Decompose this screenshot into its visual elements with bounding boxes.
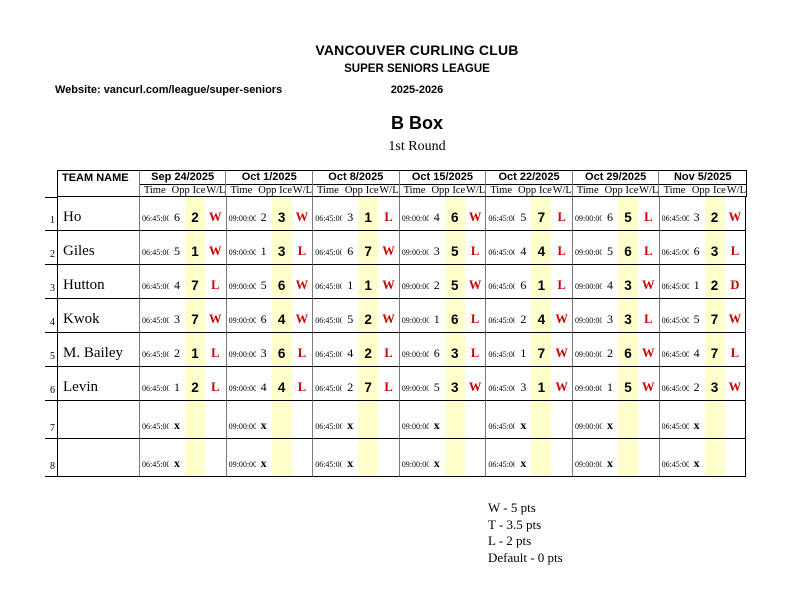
opponent-number: x [689,401,705,438]
ice-number [272,401,292,438]
opponent-number: x [689,439,705,476]
game-time: 09:00:00 [227,367,256,400]
result-letter: W [292,299,313,332]
game-cell: 09:00:0043W [573,265,660,299]
opponent-number: 4 [256,367,272,400]
result-letter: L [292,367,313,400]
date-group-header: Nov 5/2025TimeOppIceW/L [659,171,746,196]
subheader-opp: Opp [170,185,192,196]
ice-number: 5 [618,197,638,230]
game-time: 09:00:00 [573,439,602,476]
game-time: 06:45:00 [140,333,169,366]
subheader-opp: Opp [256,185,278,196]
table-row: 6Levin06:45:0012L09:00:0044L06:45:0027L0… [45,367,747,401]
date-header: Oct 29/2025 [573,171,659,185]
ice-number [531,439,551,476]
game-cell: 06:45:0067W [313,231,400,265]
opponent-number: x [342,439,358,476]
opponent-number: 6 [256,299,272,332]
opponent-number: 2 [342,367,358,400]
game-time: 06:45:00 [660,265,689,298]
result-letter [292,401,313,438]
result-letter: W [551,367,572,400]
opponent-number: 2 [429,265,445,298]
game-cell: 06:45:0057L [486,197,573,231]
game-cell: 09:00:0035L [400,231,487,265]
game-cell: 06:45:00x [313,401,400,439]
table-header-row: TEAM NAME Sep 24/2025TimeOppIceW/LOct 1/… [57,170,747,197]
result-letter [378,401,399,438]
game-cell: 06:45:0042L [313,333,400,367]
game-time: 06:45:00 [486,367,515,400]
season-label: 2025-2026 [40,84,792,96]
game-cell: 09:00:0026W [573,333,660,367]
result-letter: L [638,231,659,264]
game-time: 06:45:00 [313,367,342,400]
result-letter: W [725,197,746,230]
game-cell: 09:00:0023W [227,197,314,231]
game-time: 09:00:00 [573,265,602,298]
ice-number [618,439,638,476]
game-cell: 09:00:0056L [573,231,660,265]
game-time: 06:45:00 [660,197,689,230]
subheader-opp: Opp [516,185,538,196]
row-number: 7 [45,401,57,439]
ice-number: 3 [618,299,638,332]
game-time: 06:45:00 [313,231,342,264]
game-cell: 06:45:0012D [660,265,747,299]
opponent-number: x [429,439,445,476]
game-cell: 09:00:00x [227,401,314,439]
opponent-number: x [515,439,531,476]
subheader-ice: Ice [625,185,639,196]
ice-number: 7 [358,231,378,264]
date-header: Sep 24/2025 [140,171,226,185]
result-letter: L [465,231,486,264]
team-name: Ho [57,197,140,231]
game-time: 09:00:00 [573,197,602,230]
ice-number: 4 [531,231,551,264]
table-row: 5M. Bailey06:45:0021L09:00:0036L06:45:00… [45,333,747,367]
date-header: Oct 8/2025 [313,171,399,185]
ice-number: 2 [705,197,725,230]
result-letter: W [551,299,572,332]
game-time: 06:45:00 [660,231,689,264]
opponent-number: 4 [515,231,531,264]
opponent-number: 6 [169,197,185,230]
game-cell: 06:45:0062W [140,197,227,231]
result-letter: L [378,367,399,400]
game-cell: 06:45:0044L [486,231,573,265]
game-cell: 06:45:0047L [140,265,227,299]
opponent-number: 2 [515,299,531,332]
game-time: 06:45:00 [140,265,169,298]
opponent-number: 4 [169,265,185,298]
table-row: 806:45:00x09:00:00x06:45:00x09:00:00x06:… [45,439,747,477]
ice-number: 1 [185,231,205,264]
game-time: 06:45:00 [140,439,169,476]
date-header: Oct 22/2025 [486,171,572,185]
ice-number: 4 [272,367,292,400]
result-letter: W [205,197,226,230]
ice-number [272,439,292,476]
ice-number: 1 [358,265,378,298]
ice-number: 7 [185,265,205,298]
ice-number: 3 [445,333,465,366]
result-letter: L [725,231,746,264]
game-cell: 06:45:00x [140,401,227,439]
subheader-row: TimeOppIceW/L [140,185,226,196]
opponent-number: x [429,401,445,438]
subheader-row: TimeOppIceW/L [573,185,659,196]
result-letter [725,401,746,438]
schedule-table: TEAM NAME Sep 24/2025TimeOppIceW/LOct 1/… [45,170,747,477]
game-cell: 09:00:0053W [400,367,487,401]
ice-number: 4 [531,299,551,332]
result-letter: L [205,333,226,366]
game-cell: 06:45:0032W [660,197,747,231]
game-cell: 06:45:00x [140,439,227,477]
result-letter: L [378,197,399,230]
subheader-time: Time [573,185,603,196]
subheader-time: Time [140,185,170,196]
game-time: 09:00:00 [400,299,429,332]
ice-number: 4 [272,299,292,332]
result-letter [465,439,486,476]
opponent-number: 6 [602,197,618,230]
opponent-number: 1 [429,299,445,332]
game-time: 09:00:00 [227,231,256,264]
game-time: 09:00:00 [573,367,602,400]
game-cell: 06:45:0031L [313,197,400,231]
result-letter [378,439,399,476]
row-number: 8 [45,439,57,477]
game-cell: 06:45:0051W [140,231,227,265]
opponent-number: x [169,401,185,438]
points-legend: W - 5 ptsT - 3.5 ptsL - 2 ptsDefault - 0… [488,500,563,566]
table-row: 1Ho06:45:0062W09:00:0023W06:45:0031L09:0… [45,197,747,231]
game-cell: 06:45:00x [486,439,573,477]
game-time: 09:00:00 [227,299,256,332]
opponent-number: 4 [429,197,445,230]
game-time: 09:00:00 [400,265,429,298]
game-cell: 06:45:0023W [660,367,747,401]
result-letter: L [205,367,226,400]
subheader-opp: Opp [429,185,451,196]
game-time: 06:45:00 [486,333,515,366]
opponent-number: 3 [689,197,705,230]
row-number: 5 [45,333,57,367]
opponent-number: x [342,401,358,438]
opponent-number: 3 [256,333,272,366]
result-letter [205,401,226,438]
team-name [57,439,140,477]
game-time: 09:00:00 [573,231,602,264]
date-header: Nov 5/2025 [659,171,746,185]
opponent-number: 2 [602,333,618,366]
subheader-wl: W/L [206,185,225,196]
opponent-number: 3 [515,367,531,400]
ice-number: 3 [272,197,292,230]
game-cell: 09:00:0063L [400,333,487,367]
row-number: 1 [45,197,57,231]
result-letter: W [378,265,399,298]
game-time: 06:45:00 [313,401,342,438]
result-letter: W [292,197,313,230]
game-time: 09:00:00 [227,439,256,476]
ice-number: 1 [185,333,205,366]
ice-number [705,401,725,438]
game-cell: 06:45:0061L [486,265,573,299]
opponent-number: 3 [342,197,358,230]
ice-number: 7 [531,333,551,366]
game-cell: 06:45:0027L [313,367,400,401]
ice-number: 2 [358,299,378,332]
opponent-number: 4 [689,333,705,366]
team-name: M. Bailey [57,333,140,367]
game-time: 09:00:00 [227,265,256,298]
opponent-number: 1 [256,231,272,264]
result-letter: L [725,333,746,366]
date-group-header: Oct 8/2025TimeOppIceW/L [313,171,400,196]
date-header: Oct 15/2025 [400,171,486,185]
game-time: 09:00:00 [573,299,602,332]
game-time: 06:45:00 [660,401,689,438]
ice-number [705,439,725,476]
game-time: 06:45:00 [660,367,689,400]
result-letter [465,401,486,438]
opponent-number: 6 [342,231,358,264]
opponent-number: 5 [602,231,618,264]
ice-number: 3 [272,231,292,264]
ice-number: 7 [185,299,205,332]
game-time: 06:45:00 [313,197,342,230]
opponent-number: 2 [169,333,185,366]
ice-number: 7 [358,367,378,400]
game-cell: 06:45:00x [486,401,573,439]
subheader-ice: Ice [365,185,379,196]
ice-number: 2 [358,333,378,366]
result-letter [205,439,226,476]
game-time: 06:45:00 [140,401,169,438]
row-number: 6 [45,367,57,401]
result-letter: L [551,265,572,298]
ice-number: 2 [185,367,205,400]
team-name: Levin [57,367,140,401]
legend-line: Default - 0 pts [488,550,563,567]
opponent-number: 4 [342,333,358,366]
game-time: 06:45:00 [313,333,342,366]
result-letter [551,439,572,476]
subheader-ice: Ice [452,185,466,196]
result-letter: W [465,367,486,400]
date-group-header: Oct 29/2025TimeOppIceW/L [573,171,660,196]
ice-number: 7 [531,197,551,230]
game-cell: 09:00:00x [400,401,487,439]
game-time: 09:00:00 [400,231,429,264]
opponent-number: x [602,401,618,438]
game-time: 06:45:00 [660,333,689,366]
legend-line: L - 2 pts [488,533,563,550]
game-cell: 09:00:00x [573,439,660,477]
subheader-row: TimeOppIceW/L [659,185,746,196]
result-letter: W [378,299,399,332]
result-letter: L [465,333,486,366]
opponent-number: 5 [515,197,531,230]
result-letter: L [638,299,659,332]
game-time: 09:00:00 [227,197,256,230]
subheader-ice: Ice [278,185,292,196]
subheader-ice: Ice [192,185,206,196]
result-letter: W [638,333,659,366]
opponent-number: 6 [429,333,445,366]
result-letter: W [725,299,746,332]
game-cell: 09:00:0065L [573,197,660,231]
ice-number: 6 [618,333,638,366]
opponent-number: 6 [515,265,531,298]
game-cell: 06:45:0021L [140,333,227,367]
league-subtitle: SUPER SENIORS LEAGUE [40,63,792,75]
game-cell: 06:45:00x [313,439,400,477]
game-cell: 09:00:0025W [400,265,487,299]
result-letter: W [638,265,659,298]
game-cell: 09:00:0046W [400,197,487,231]
result-letter: W [551,333,572,366]
game-time: 09:00:00 [227,401,256,438]
game-time: 06:45:00 [313,439,342,476]
ice-number: 3 [618,265,638,298]
game-time: 09:00:00 [573,333,602,366]
ice-number: 6 [618,231,638,264]
box-title: B Box [40,113,792,134]
result-letter: L [551,231,572,264]
team-name: Hutton [57,265,140,299]
result-letter [638,401,659,438]
opponent-number: 5 [342,299,358,332]
game-cell: 09:00:00x [400,439,487,477]
result-letter: W [465,197,486,230]
date-group-header: Oct 22/2025TimeOppIceW/L [486,171,573,196]
date-header: Oct 1/2025 [226,171,312,185]
opponent-number: 3 [429,231,445,264]
subheader-wl: W/L [639,185,658,196]
ice-number: 3 [445,367,465,400]
subheader-time: Time [486,185,516,196]
subheader-ice: Ice [712,185,727,196]
game-cell: 06:45:0037W [140,299,227,333]
team-name: Kwok [57,299,140,333]
opponent-number: 1 [342,265,358,298]
ice-number: 6 [445,197,465,230]
row-number: 2 [45,231,57,265]
result-letter: W [638,367,659,400]
table-row: 4Kwok06:45:0037W09:00:0064W06:45:0052W09… [45,299,747,333]
result-letter: L [292,333,313,366]
subheader-row: TimeOppIceW/L [313,185,399,196]
subheader-opp: Opp [603,185,625,196]
ice-number: 1 [531,265,551,298]
game-cell: 06:45:00x [660,401,747,439]
subheader-row: TimeOppIceW/L [400,185,486,196]
opponent-number: 3 [602,299,618,332]
ice-number: 1 [531,367,551,400]
ice-number: 7 [705,333,725,366]
game-time: 09:00:00 [400,439,429,476]
date-group-header: Oct 1/2025TimeOppIceW/L [226,171,313,196]
opponent-number: 1 [689,265,705,298]
opponent-number: 3 [169,299,185,332]
game-cell: 06:45:0047L [660,333,747,367]
team-name-header: TEAM NAME [58,171,140,196]
opponent-number: 1 [169,367,185,400]
ice-number: 6 [445,299,465,332]
legend-line: W - 5 pts [488,500,563,517]
ice-number [445,401,465,438]
subheader-row: TimeOppIceW/L [486,185,572,196]
game-time: 09:00:00 [400,197,429,230]
ice-number [358,401,378,438]
game-time: 09:00:00 [400,333,429,366]
result-letter [292,439,313,476]
game-time: 06:45:00 [140,299,169,332]
ice-number: 6 [272,265,292,298]
game-cell: 06:45:0052W [313,299,400,333]
subheader-wl: W/L [293,185,312,196]
game-cell: 06:45:0012L [140,367,227,401]
game-cell: 09:00:0044L [227,367,314,401]
date-group-header: Sep 24/2025TimeOppIceW/L [140,171,227,196]
game-cell: 06:45:0057W [660,299,747,333]
result-letter: L [551,197,572,230]
game-time: 06:45:00 [313,265,342,298]
game-cell: 09:00:0013L [227,231,314,265]
game-time: 06:45:00 [140,367,169,400]
ice-number: 3 [705,367,725,400]
game-time: 06:45:00 [486,439,515,476]
ice-number [358,439,378,476]
club-title: VANCOUVER CURLING CLUB [40,42,792,58]
result-letter: W [292,265,313,298]
ice-number [445,439,465,476]
opponent-number: x [256,401,272,438]
ice-number: 2 [705,265,725,298]
ice-number: 3 [705,231,725,264]
table-row: 706:45:00x09:00:00x06:45:00x09:00:00x06:… [45,401,747,439]
legend-line: T - 3.5 pts [488,517,563,534]
game-time: 09:00:00 [573,401,602,438]
row-number: 4 [45,299,57,333]
game-time: 09:00:00 [400,367,429,400]
schedule-sheet: VANCOUVER CURLING CLUB SUPER SENIORS LEA… [0,0,792,612]
game-cell: 06:45:00x [660,439,747,477]
opponent-number: x [602,439,618,476]
game-cell: 09:00:00x [227,439,314,477]
result-letter: L [205,265,226,298]
ice-number: 5 [618,367,638,400]
game-time: 06:45:00 [486,299,515,332]
result-letter [725,439,746,476]
game-cell: 06:45:0063L [660,231,747,265]
subheader-time: Time [659,185,689,196]
ice-number: 5 [445,265,465,298]
game-time: 09:00:00 [227,333,256,366]
subheader-wl: W/L [379,185,398,196]
result-letter: L [638,197,659,230]
game-time: 06:45:00 [486,197,515,230]
game-cell: 09:00:0016L [400,299,487,333]
ice-number [185,401,205,438]
subheader-time: Time [226,185,256,196]
